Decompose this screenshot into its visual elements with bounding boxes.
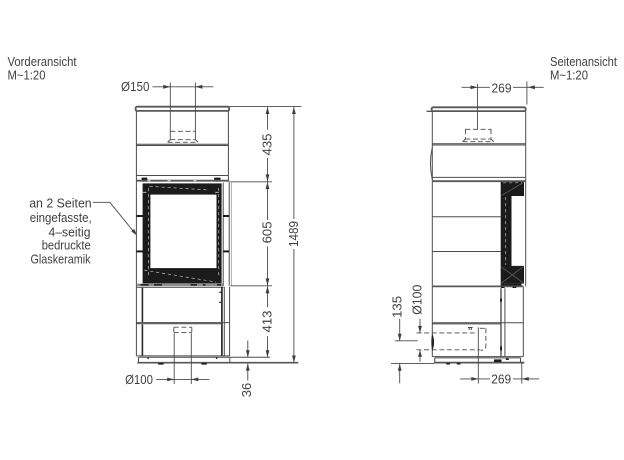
svg-text:Ø100: Ø100 [410, 285, 425, 315]
svg-text:Glaskeramik: Glaskeramik [31, 251, 91, 266]
svg-text:435: 435 [260, 134, 275, 156]
svg-text:605: 605 [260, 221, 275, 243]
svg-text:eingefasste,: eingefasste, [30, 210, 92, 225]
svg-text:Ø100: Ø100 [125, 372, 153, 387]
svg-text:36: 36 [239, 383, 254, 398]
svg-text:an 2 Seiten: an 2 Seiten [29, 196, 92, 211]
svg-text:M~1:20: M~1:20 [8, 68, 46, 83]
svg-text:1489: 1489 [286, 221, 301, 247]
svg-text:269: 269 [491, 372, 511, 387]
svg-text:413: 413 [260, 311, 275, 333]
svg-text:269: 269 [492, 80, 512, 95]
svg-text:Ø150: Ø150 [121, 79, 150, 94]
svg-text:135: 135 [389, 296, 404, 318]
svg-text:M~1:20: M~1:20 [550, 68, 588, 83]
